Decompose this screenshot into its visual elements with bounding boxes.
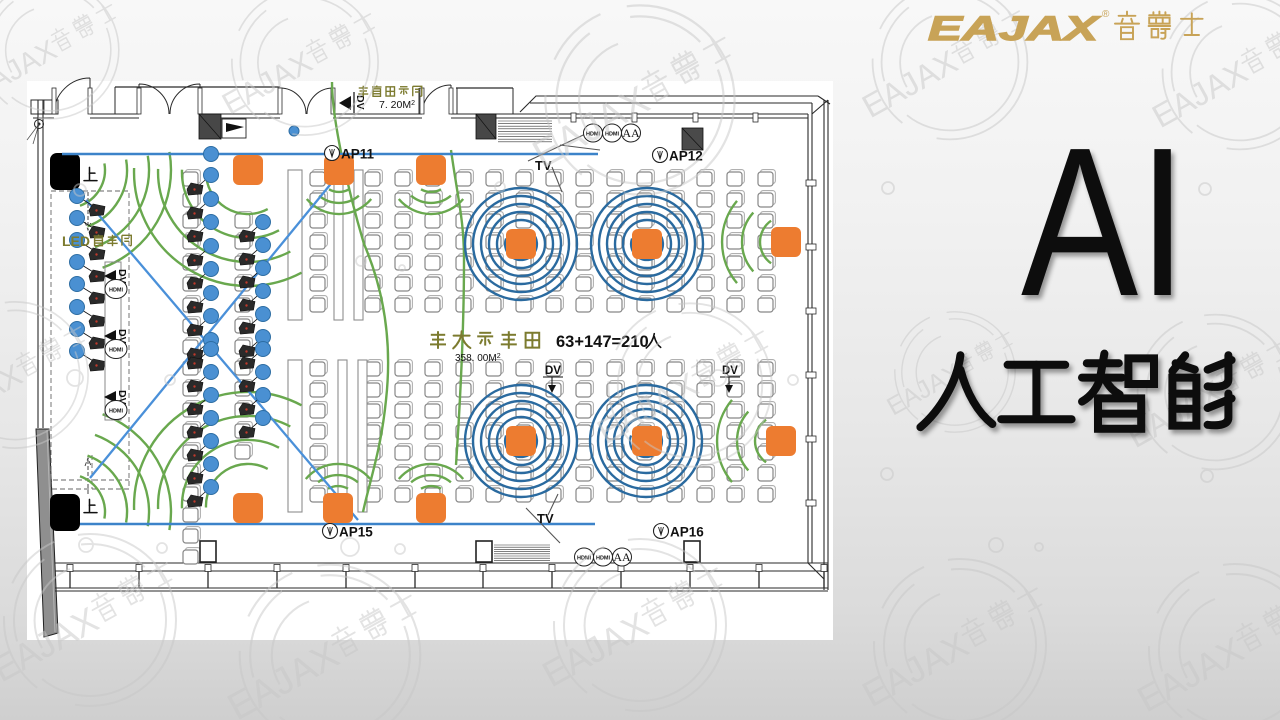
svg-text:HDMI: HDMI — [109, 288, 124, 294]
svg-text:LED: LED — [62, 233, 90, 249]
svg-text:AP11: AP11 — [341, 147, 375, 162]
svg-text:DV: DV — [722, 365, 738, 377]
svg-text:®: ® — [1102, 9, 1110, 20]
svg-text:7. 20M2: 7. 20M2 — [379, 99, 415, 111]
svg-text:HDMI: HDMI — [109, 348, 124, 354]
svg-text:63+147=210: 63+147=210 — [556, 333, 649, 351]
svg-text:AP15: AP15 — [339, 525, 373, 540]
svg-text:TV: TV — [537, 511, 554, 526]
svg-text:AI: AI — [1021, 103, 1187, 340]
svg-text:AA: AA — [613, 550, 631, 564]
svg-text:358. 00M2: 358. 00M2 — [455, 353, 501, 364]
svg-text:HDMI: HDMI — [596, 556, 611, 562]
svg-text:HDMI: HDMI — [109, 409, 124, 415]
svg-text:EAJAX: EAJAX — [928, 10, 1101, 48]
svg-text:AP16: AP16 — [670, 525, 704, 540]
svg-text:DV: DV — [545, 365, 561, 377]
